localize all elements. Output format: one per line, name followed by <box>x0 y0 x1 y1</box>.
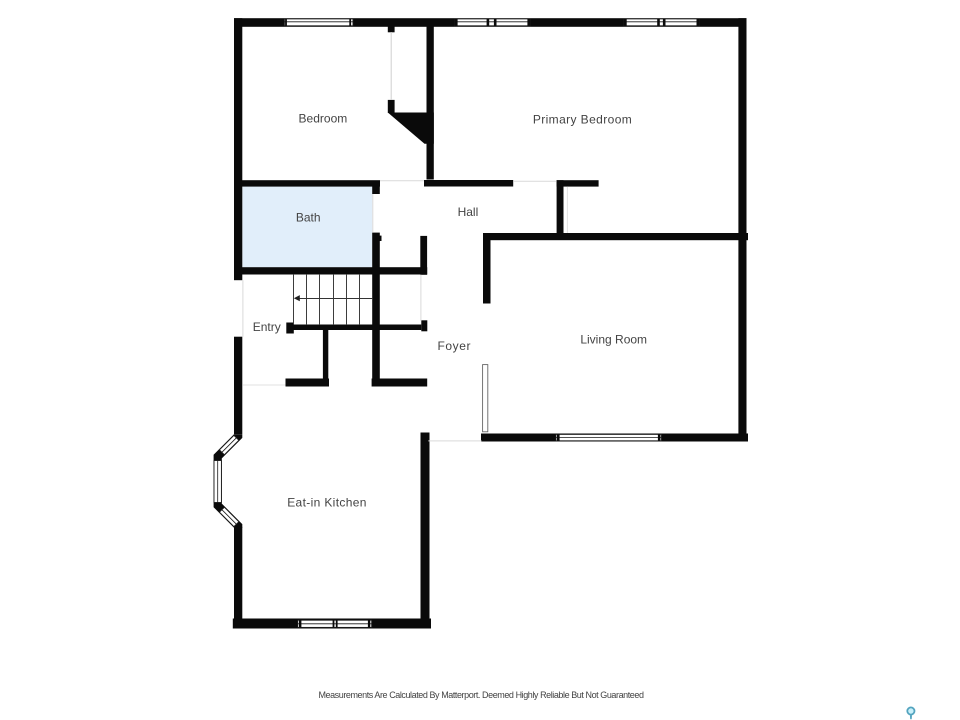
svg-text:Primary Bedroom: Primary Bedroom <box>533 113 632 127</box>
svg-text:Living Room: Living Room <box>580 332 647 346</box>
svg-text:Hall: Hall <box>458 205 479 219</box>
svg-text:Entry: Entry <box>253 320 281 334</box>
svg-text:Measurements Are Calculated By: Measurements Are Calculated By Matterpor… <box>318 690 643 700</box>
svg-text:Bedroom: Bedroom <box>299 112 348 126</box>
svg-text:Bath: Bath <box>296 211 321 225</box>
svg-text:Eat-in Kitchen: Eat-in Kitchen <box>287 495 367 509</box>
svg-text:Foyer: Foyer <box>437 339 471 353</box>
